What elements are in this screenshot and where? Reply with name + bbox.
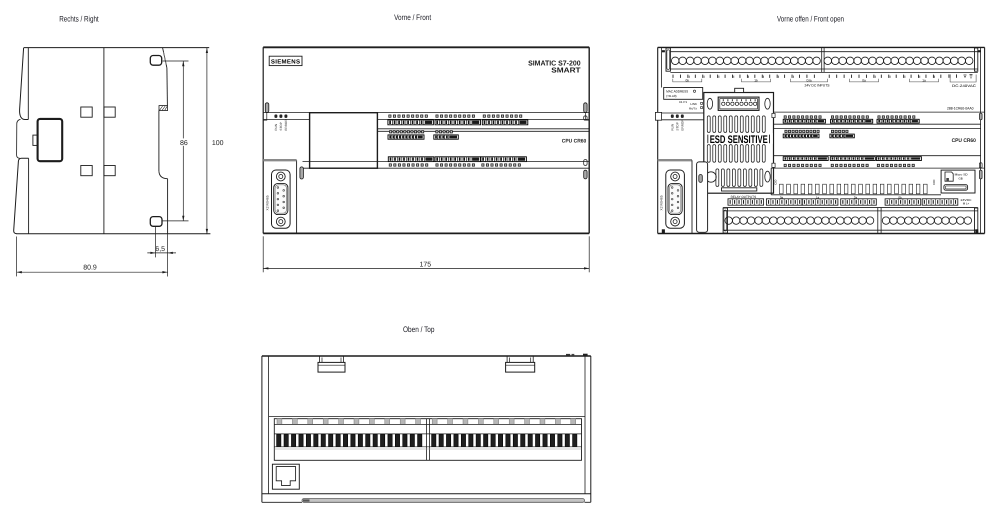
svg-text:SMART: SMART — [551, 66, 581, 75]
svg-text:100: 100 — [212, 140, 224, 147]
svg-text:CPU CR60: CPU CR60 — [562, 138, 587, 144]
svg-text:24V DC INPUTS: 24V DC INPUTS — [805, 83, 831, 87]
svg-text:ESD SENSITIVE: ESD SENSITIVE — [710, 134, 768, 146]
svg-text:X2 RS485: X2 RS485 — [660, 195, 664, 210]
svg-text:X2 RS485: X2 RS485 — [266, 195, 270, 210]
svg-text:MAC ADDRESS: MAC ADDRESS — [666, 90, 688, 94]
svg-text:0a: 0a — [862, 79, 866, 83]
svg-text:RUN: RUN — [671, 124, 675, 131]
svg-text:0b: 0b — [686, 79, 690, 83]
svg-text:M L+: M L+ — [963, 202, 970, 206]
svg-text:175: 175 — [419, 261, 431, 268]
svg-text:RUN: RUN — [274, 124, 278, 131]
svg-text:Vorne / Front: Vorne / Front — [394, 13, 432, 22]
svg-text:Rx/Tx: Rx/Tx — [689, 106, 697, 110]
svg-text:GB: GB — [959, 176, 963, 180]
svg-text:80.9: 80.9 — [83, 265, 97, 272]
svg-text:1b: 1b — [754, 79, 758, 83]
svg-text:CIO: CIO — [773, 179, 777, 185]
svg-text:ERROR: ERROR — [284, 119, 288, 131]
svg-text:Oben / Top: Oben / Top — [403, 325, 435, 334]
svg-text:(TB.A0): (TB.A0) — [666, 94, 676, 98]
svg-text:SIEMENS: SIEMENS — [271, 59, 301, 66]
svg-text:CPU CR60: CPU CR60 — [952, 138, 976, 144]
svg-text:Rechts / Right: Rechts / Right — [59, 15, 99, 24]
svg-text:CIO: CIO — [932, 179, 936, 185]
svg-text:1a: 1a — [922, 79, 926, 83]
svg-text:STOP: STOP — [676, 122, 680, 130]
svg-text:Vorne offen / Front open: Vorne offen / Front open — [777, 15, 844, 24]
svg-text:X1 P1: X1 P1 — [679, 100, 688, 104]
svg-text:DIa: DIa — [807, 79, 812, 83]
svg-text:DC-240VAC: DC-240VAC — [952, 84, 977, 88]
svg-text:6,5: 6,5 — [155, 246, 165, 253]
svg-text:ERROR: ERROR — [681, 119, 685, 131]
svg-text:86: 86 — [180, 140, 188, 147]
svg-text:RELAY OUTPUTS: RELAY OUTPUTS — [731, 195, 757, 199]
svg-text:STOP: STOP — [279, 122, 283, 130]
svg-text:288-1CR60-0AA0: 288-1CR60-0AA0 — [947, 106, 974, 110]
